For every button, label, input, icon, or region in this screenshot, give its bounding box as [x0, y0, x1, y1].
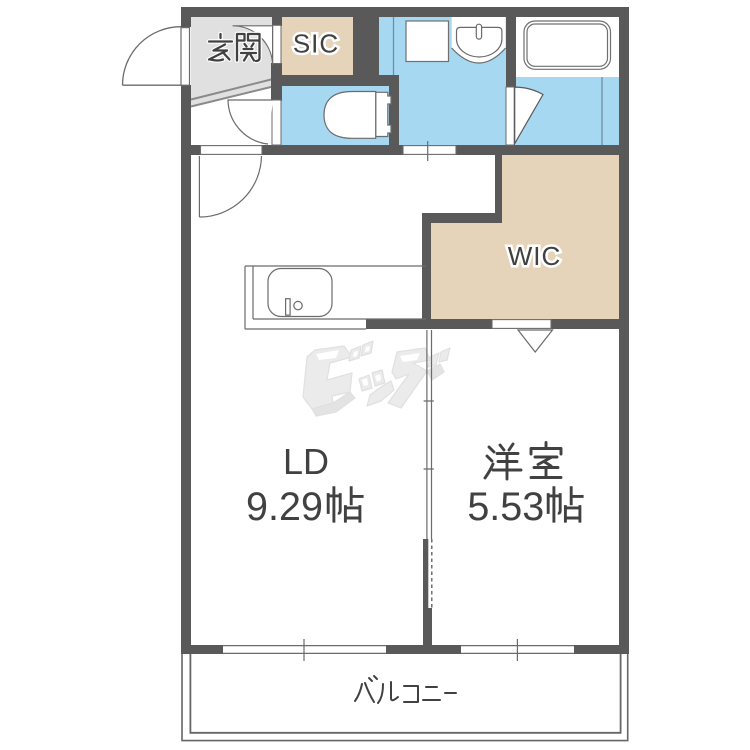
- svg-text:LD: LD: [283, 441, 329, 482]
- svg-text:SIC: SIC: [293, 29, 339, 59]
- svg-text:5.53: 5.53: [467, 485, 544, 529]
- svg-text:9.29: 9.29: [246, 485, 323, 529]
- svg-text:WIC: WIC: [508, 241, 562, 271]
